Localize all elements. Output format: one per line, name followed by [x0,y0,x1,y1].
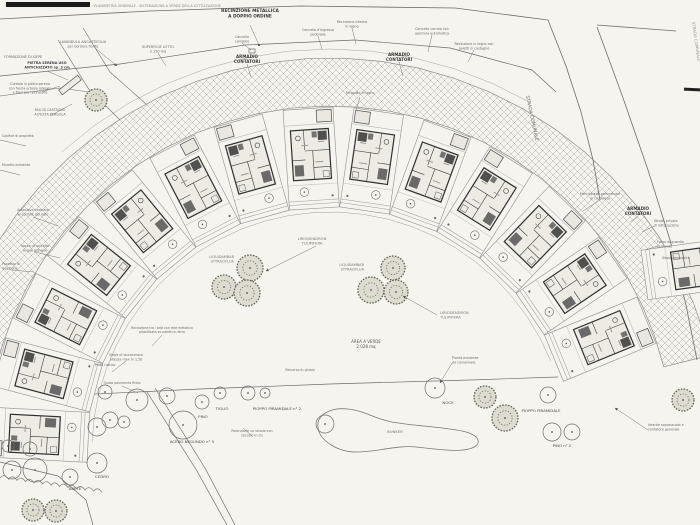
tree-trunk-dot [219,392,221,394]
garage [354,110,371,124]
tree-trunk-dot [571,431,573,433]
dark-room-patch [368,133,374,140]
ann-cordolo: Cordolo in pietra serenacon fascia erbos… [9,82,52,95]
dark-room-patch [311,131,316,137]
tree-label-pino: PINO [198,414,207,419]
ann-strada-privata: Strada privatadi lottizzazione [654,219,679,227]
fence-label: RECINZIONE METALLICAA DOPPIO ORDINE [221,8,279,19]
annotation-line: di lottizzazione [654,223,679,227]
tree-fluffy [492,405,518,431]
annotation-line: SUPERFICIE LOTTO [142,45,174,49]
annotation-line: CONTATORI [386,57,413,62]
site-plan-page: RECINZIONE METALLICAA DOPPIO ORDINESTRAD… [0,0,700,525]
annotation-line: al confine del lotto [18,212,49,216]
dark-room-patch [317,131,327,141]
annotation-line: in legno [345,24,358,28]
annotation-line: LIRIODENDRON [440,311,469,315]
tree-trunk-dot [370,289,372,291]
annotation-line: e filari per recinzione [13,91,48,95]
tree-trunk-dot [136,399,138,401]
annotation-line: pedonale [310,32,325,36]
ann-cancello-carraio: Cancello carraio conapertura automatica [415,27,449,35]
tree-fluffy [212,275,236,299]
ann-lauroceraso: Siepe di laurocerasoaltezza max m 1,50 [109,353,143,361]
tree-trunk-dot [104,391,106,393]
annotation-line: FORMAZIONE DI SIEPE [4,55,42,59]
annotation-line: paletti in castagno [459,46,490,50]
tree-trunk-dot [34,469,36,471]
tree-trunk-dot [123,421,125,423]
annotation-line: plastificata su paletti in ferro [139,330,185,334]
title-strip-caption: PLANIMETRIA GENERALE - SISTEMAZIONE A VE… [94,4,221,8]
house-lot [283,107,339,210]
dark-room-patch [295,165,305,177]
annotation-line: in cls lavato [590,196,610,200]
annotation-line: Prato rustico [95,363,116,367]
meter-cabinet-label-3: ARMADIOCONTATORI [625,206,652,216]
tree-cluster-label-1: LIRIODENDRONTULIPIFERA [298,237,327,246]
annotation-line: Confine di proprietà [2,134,34,138]
tree-trunk-dot [223,286,225,288]
tree-trunk-dot [246,292,248,294]
annotation-line: PIOPPO PIRAMIDALE n° 2 [253,406,302,411]
ann-siepe: FORMAZIONE DI SIEPE [4,55,42,59]
annotation-line: ispezione [2,266,18,270]
tree-fluffy [234,280,260,306]
annotation-line: LIQUIDAMBAR [209,255,234,259]
annotation-line: ABETE [69,486,82,491]
ann-ghiaia: Percorso in ghiaia [285,368,314,372]
ann-siepe-campestre: Siepe campestre [662,256,690,260]
tree-fluffy [381,256,405,280]
lot-contents [283,107,339,210]
ann-pergolato: Pergolato in legno [346,91,375,95]
annotation-line: carrabile [235,39,249,43]
ann-autoclave: Autoclave interrataal confine del lotto [17,208,49,216]
house-lot [0,407,90,462]
annotation-line: Percorso in ghiaia [285,368,314,372]
annotation-line: Siepe campestre [662,256,690,260]
tree-trunk-dot [166,395,168,397]
annotation-line: LAVANDULA ANGUSTIFOLIA [60,40,107,44]
tree-fluffy [85,89,107,111]
tree-fluffy [384,280,408,304]
pond-label: BUNKER [387,429,403,434]
tree-trunk-dot [264,392,266,394]
annotation-line: TULIPIFERA [439,316,461,320]
dark-room-patch [678,277,690,287]
annotation-line: PIOPPO PIRAMIDALE [522,408,562,413]
dark-room-patch [11,435,17,440]
annotation-line: altezza max m 1,50 [110,357,143,361]
tree-cluster-label-4: LIQUIDAMBARSTYRACIFLUA [339,263,364,272]
ann-cancello-carrabile: Cancellocarrabile [235,35,249,43]
tree-cluster-label-3: LIQUIDAMBARSTYRACIFLUA [209,255,234,264]
tree-trunk-dot [682,399,684,401]
tree-trunk-dot [7,445,9,447]
ann-pali: PALI DI CASTAGNOALTEZZA PERGOLA [34,108,66,116]
annotation-line: CEDRO [95,474,109,479]
tree-label-abete: ABETE [69,486,82,491]
annotation-line: TULIPIFERA [301,242,323,246]
annotation-line: apertura automatica [415,31,449,35]
annotation-line: NOCE [442,400,454,405]
tree-label-acero: ACERO NEGUNDO n° 5 [170,439,215,444]
annotation-line: STYRACIFLUA [341,268,365,272]
annotation-line: ALTEZZA PERGOLA [34,112,66,116]
site-plan-drawing: RECINZIONE METALLICAA DOPPIO ORDINESTRAD… [0,0,700,525]
garage [316,109,332,122]
tree-fluffy [474,386,496,408]
annotation-line: PINO [198,414,207,419]
tree-trunk-dot [551,431,553,433]
annotation-line: CONTATORI [234,59,261,64]
annotation-line: PINO n° 2 [553,443,572,448]
ann-rete-lotti: Recinzione tra i lotti con rete metallic… [131,326,193,334]
annotation-line: LIQUIDAMBAR [339,263,364,267]
dark-room-patch [11,441,20,450]
ann-idrante: Idrante soprassuolo econtatore generale [648,423,684,431]
annotation-line: da conservare [452,360,475,364]
tree-trunk-dot [547,394,549,396]
ann-pianta-esistente: Pianta esistenteda conservare [452,356,478,364]
annotation-line: acque piovane [23,248,47,252]
annotation-line: LIRIODENDRON [298,237,327,241]
tree-fluffy [237,255,263,281]
tree-trunk-dot [32,509,34,511]
tree-label-cedro: CEDRO [95,474,109,479]
annotation-line: BUNKER [387,429,403,434]
tree-fluffy [22,499,44,521]
tree-trunk-dot [504,417,506,419]
dark-room-patch [377,168,387,180]
tree-trunk-dot [55,510,57,512]
tree-trunk-dot [484,396,486,398]
annotation-line: Pergolato in legno [346,91,375,95]
annotation-line: 2.028 mq [356,344,376,349]
lot-contents [0,407,90,462]
annotation-line: RECINZIONE METALLICA [221,8,279,14]
annotation-line: zoccolo in cls [241,433,263,437]
annotation-line: 2.150 mq [150,49,166,53]
leader-dot [258,44,260,46]
annotation-line: TIGLIO [215,406,229,411]
tree-trunk-dot [96,462,98,464]
ann-recinzione-legno: Recinzione in legno conpaletti in castag… [455,42,494,50]
ann-pietra: PIETRA SERENA USOANTICHIZZATO sp. 3 cm [24,61,70,69]
ann-prato: Prato rustico [95,363,116,367]
tree-trunk-dot [249,267,251,269]
dark-room-patch [45,418,56,428]
ann-confine: Confine di proprietà [2,134,34,138]
tree-trunk-dot [434,387,436,389]
tree-label-noce: NOCE [442,400,454,405]
annotation-line: ACERO NEGUNDO n° 5 [170,439,215,444]
ann-quota: Quota pavimento finito [104,381,141,385]
tree-label-pino-2: PINO n° 2 [553,443,572,448]
annotation-line: esistente [657,244,672,248]
tree-label-tiglio: TIGLIO [215,406,229,411]
annotation-line: Quota pavimento finito [104,381,141,385]
annotation-line: PLANIMETRIA GENERALE - SISTEMAZIONE A VE… [94,4,221,8]
tree-trunk-dot [11,469,13,471]
annotation-line: contatore generale [648,427,679,431]
annotation-line: Muretto esistente [2,163,30,167]
tree-fluffy [45,500,67,522]
tree-trunk-dot [95,99,97,101]
tree-fluffy [358,277,384,303]
tree-trunk-dot [395,291,397,293]
tree-label-pioppo: PIOPPO PIRAMIDALE [522,408,562,413]
ann-muretto: Muretto esistente [2,163,30,167]
annotation-line: per bordure fiorite [67,44,98,48]
tree-trunk-dot [29,448,31,450]
tree-label-pioppo-2: PIOPPO PIRAMIDALE n° 2 [253,406,302,411]
tree-trunk-dot [201,401,203,403]
meter-cabinet-label-1: ARMADIOCONTATORI [234,54,261,64]
meter-cabinet-label-2: ARMADIOCONTATORI [386,52,413,62]
dark-room-patch [357,132,367,142]
tree-trunk-dot [96,426,98,428]
annotation-line: ANTICHIZZATO sp. 3 cm [24,65,70,69]
tree-trunk-dot [69,476,71,478]
annotation-line: CONTATORI [625,211,652,216]
tree-trunk-dot [247,392,249,394]
ann-pozzetto: Pozzetto diispezione [2,262,20,270]
tree-fluffy [672,389,694,411]
title-strip-bar [6,2,90,7]
annotation-line: STYRACIFLUA [211,260,235,264]
tree-trunk-dot [182,424,184,426]
tree-trunk-dot [392,267,394,269]
tree-trunk-dot [109,419,111,421]
annotation-line: A DOPPIO ORDINE [228,13,272,19]
tree-trunk-dot [324,423,326,425]
ann-vasca: Vasca di raccoltaacque piovane [21,244,49,252]
annotation-line: PIETRA SERENA USO [27,61,66,65]
